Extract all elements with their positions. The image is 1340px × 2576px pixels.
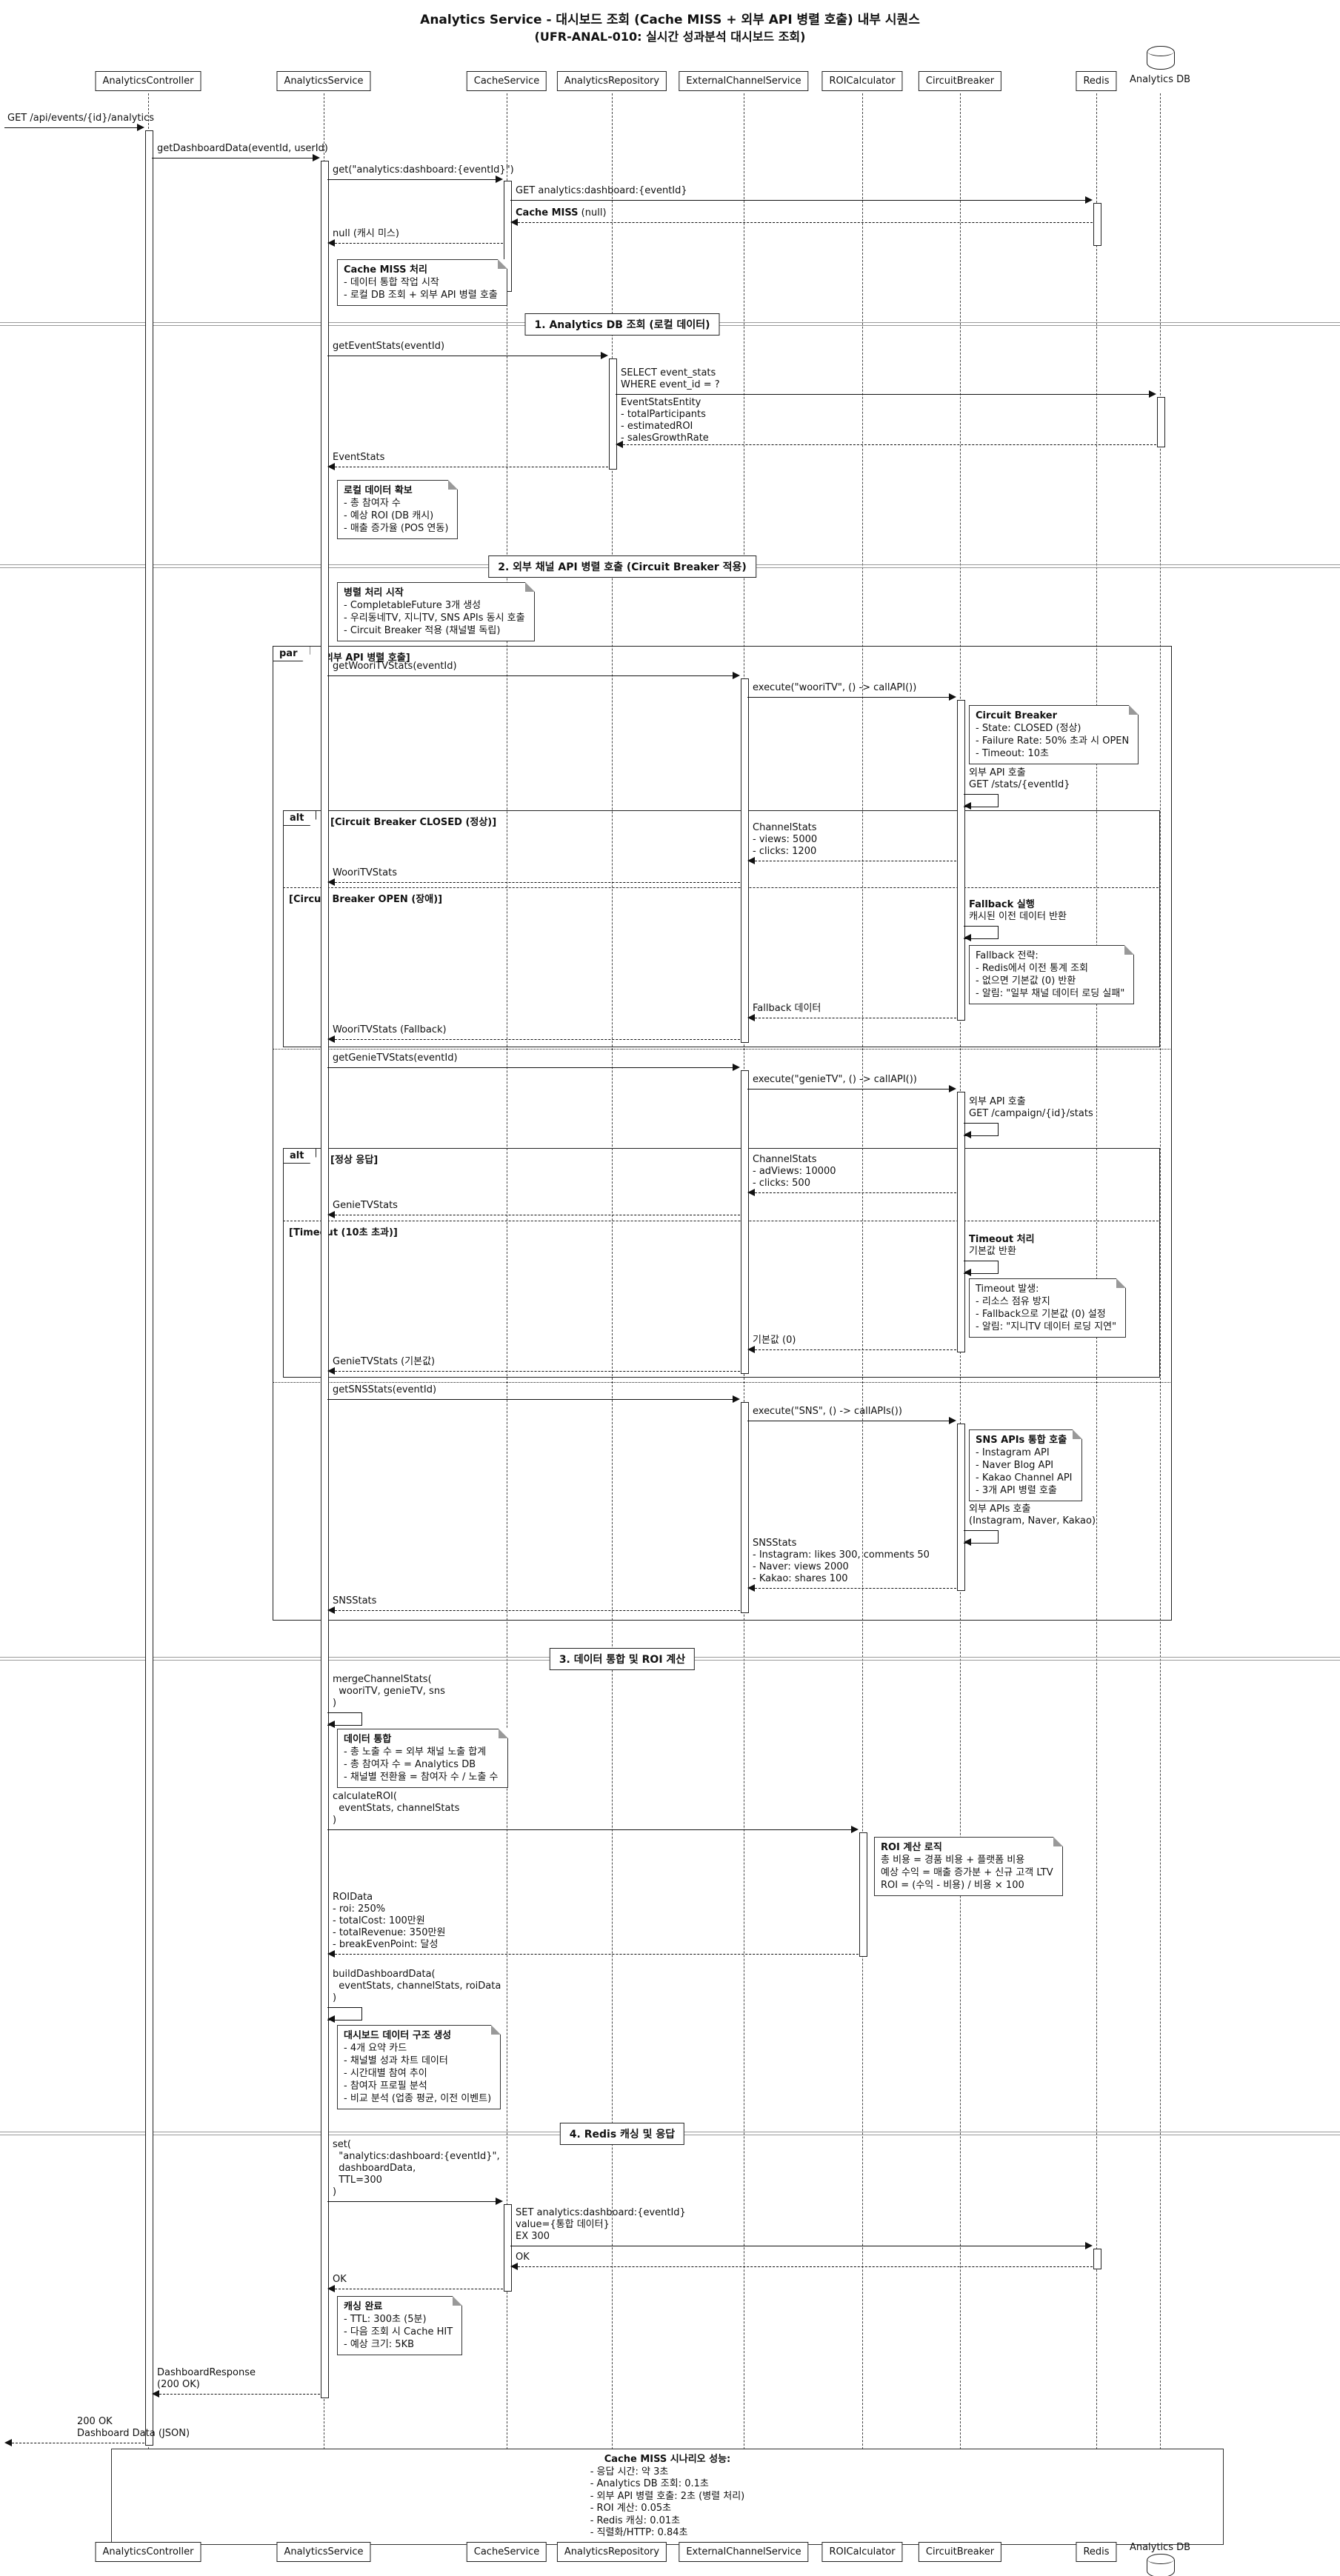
genietv-stats-arrow [335, 1215, 740, 1215]
participant-bottom-service: AnalyticsService [276, 2542, 370, 2562]
divider-label-3: 3. 데이터 통합 및 ROI 계산 [550, 1648, 695, 1670]
participant-top-roicalc: ROICalculator [821, 71, 902, 91]
fallback-exec-label: Fallback 실행캐시된 이전 데이터 반환 [969, 899, 1067, 923]
execute-sns-arrowhead [949, 1417, 956, 1424]
default-zero-label: 기본값 (0) [753, 1335, 796, 1347]
activation-controller [145, 130, 153, 2446]
wooritv-stats-arrowhead [327, 878, 335, 886]
note-sns-apis-title: SNS APIs 통합 호출 [976, 1434, 1073, 1447]
redis-ok-arrow [518, 2266, 1093, 2267]
note-data-merge-title: 데이터 통합 [344, 1733, 499, 1746]
participant-top-breaker: CircuitBreaker [919, 71, 1001, 91]
ext-api-call-wooritv-arrowhead [964, 802, 971, 810]
redis-get-arrow [510, 200, 1085, 201]
frame-tag-par: par [273, 646, 310, 661]
note-roi-logic: ROI 계산 로직총 비용 = 경품 비용 + 플랫폼 비용예상 수익 = 매출… [874, 1837, 1063, 1896]
build-dashboard-data-arrowhead [327, 2015, 335, 2023]
http-get-analytics-arrowhead [137, 124, 144, 131]
note-fold-corner [1124, 945, 1134, 955]
get-genietv-stats-label: getGenieTVStats(eventId) [333, 1052, 458, 1064]
note-local-data: 로컬 데이터 확보- 총 참여자 수- 예상 ROI (DB 캐시)- 매출 증… [337, 480, 458, 539]
frame-guard: [Timeout (10초 초과)] [289, 1224, 398, 1238]
participant-top-repo: AnalyticsRepository [557, 71, 667, 91]
participant-bottom-external: ExternalChannelService [679, 2542, 808, 2562]
cache-set-label: set( "analytics:dashboard:{eventId}", da… [333, 2139, 500, 2198]
activation-redis [1093, 203, 1101, 246]
wooritv-stats-label: WooriTVStats [333, 867, 397, 879]
activation-repo [609, 358, 617, 470]
participant-top-redis: Redis [1076, 71, 1116, 91]
activation-roicalc [859, 1832, 867, 1957]
get-genietv-stats-arrowhead [733, 1064, 740, 1071]
execute-genietv-arrowhead [949, 1085, 956, 1092]
fallback-exec-arrowhead [964, 934, 971, 941]
channelstats-wooritv-label: ChannelStats- views: 5000- clicks: 1200 [753, 822, 817, 858]
divider-label-1: 1. Analytics DB 조회 (로컬 데이터) [525, 313, 720, 336]
execute-wooritv-arrowhead [949, 693, 956, 701]
note-circuit-breaker: Circuit Breaker- State: CLOSED (정상)- Fai… [969, 705, 1139, 764]
wooritv-stats-fallback-arrowhead [327, 1035, 335, 1043]
wooritv-stats-fallback-label: WooriTVStats (Fallback) [333, 1024, 447, 1036]
cache-set-arrowhead [496, 2198, 503, 2205]
redis-ok-arrowhead [510, 2263, 518, 2270]
fallback-data-arrowhead [747, 1014, 755, 1021]
event-stats-arrowhead [327, 463, 335, 470]
build-dashboard-data-label: buildDashboardData( eventStats, channelS… [333, 1969, 501, 2004]
ext-api-call-genietv-label: 외부 API 호출GET /campaign/{id}/stats [969, 1096, 1093, 1120]
participant-bottom-repo: AnalyticsRepository [557, 2542, 667, 2562]
get-wooritv-stats-label: getWooriTVStats(eventId) [333, 661, 457, 673]
note-timeout: Timeout 발생:- 리소스 점유 방지- Fallback으로 기본값 (… [969, 1278, 1126, 1338]
cache-miss-null-arrowhead [510, 218, 518, 226]
get-event-stats-arrowhead [601, 352, 608, 359]
participant-bottom-redis: Redis [1076, 2542, 1116, 2562]
roi-data-label: ROIData- roi: 250%- totalCost: 100만원- to… [333, 1892, 445, 1951]
participant-bottom-roicalc: ROICalculator [821, 2542, 902, 2562]
event-stats-arrow [335, 467, 608, 467]
diagram-title-line1: Analytics Service - 대시보드 조회 (Cache MISS … [0, 9, 1340, 27]
par-section-separator [273, 1049, 1170, 1050]
note-fold-corner [491, 2025, 501, 2035]
activation-external [741, 1070, 749, 1374]
sns-stats-arrowhead [327, 1606, 335, 1614]
http-200-ok-label: 200 OKDashboard Data (JSON) [77, 2416, 190, 2440]
note-fallback-strategy: Fallback 전략:- Redis에서 이전 통계 조회- 없으면 기본값 … [969, 945, 1134, 1004]
note-sns-apis: SNS APIs 통합 호출- Instagram API- Naver Blo… [969, 1429, 1082, 1501]
note-performance-summary: Cache MISS 시나리오 성능:- 응답 시간: 약 3초 - Analy… [111, 2449, 1224, 2545]
note-parallel-start: 병렬 처리 시작- CompletableFuture 3개 생성- 우리동네T… [337, 582, 535, 641]
http-get-analytics-arrow [4, 127, 137, 128]
database-icon-bottom [1147, 2554, 1175, 2576]
note-timeout-title: Timeout 발생: [976, 1283, 1116, 1295]
channelstats-genietv-arrowhead [747, 1189, 755, 1196]
note-fold-corner [499, 1729, 508, 1738]
note-cache-miss-handling: Cache MISS 처리- 데이터 통합 작업 시작- 로컬 DB 조회 + … [337, 259, 507, 306]
redis-ok-label: OK [516, 2252, 530, 2263]
frame-alt-2 [283, 1148, 1160, 1378]
redis-get-label: GET analytics:dashboard:{eventId} [516, 185, 687, 197]
calculate-roi-arrowhead [851, 1826, 859, 1833]
frame-guard: [Circuit Breaker CLOSED (정상)] [330, 814, 496, 828]
snsstats-detail-arrow [755, 1588, 956, 1589]
cache-get-arrow [327, 179, 496, 180]
note-fold-corner [1129, 705, 1139, 715]
select-event-stats-label: SELECT event_statsWHERE event_id = ? [621, 367, 720, 391]
snsstats-detail-arrowhead [747, 1584, 755, 1592]
wooritv-stats-arrow [335, 882, 740, 883]
http-200-ok-arrow [12, 2443, 144, 2443]
participant-top-external: ExternalChannelService [679, 71, 808, 91]
http-get-analytics-label: GET /api/events/{id}/analytics [7, 113, 154, 124]
note-local-data-title: 로컬 데이터 확보 [344, 484, 448, 497]
wooritv-stats-fallback-arrow [335, 1039, 740, 1040]
participant-top-db: Analytics DB [1130, 74, 1190, 85]
frame-alt-1 [283, 810, 1160, 1047]
get-wooritv-stats-arrow [327, 675, 733, 676]
participant-bottom-cache: CacheService [467, 2542, 547, 2562]
null-cache-miss-arrow [335, 243, 503, 244]
dashboard-response-arrow [159, 2394, 320, 2395]
channelstats-genietv-label: ChannelStats- adViews: 10000- clicks: 50… [753, 1154, 836, 1189]
database-icon-ellipse [1147, 47, 1174, 56]
note-fold-corner [525, 582, 535, 592]
get-dashboard-data-arrowhead [313, 154, 320, 161]
default-zero-arrow [755, 1349, 956, 1350]
get-event-stats-arrow [327, 356, 601, 356]
cache-set-arrow [327, 2201, 496, 2202]
participant-bottom-db: Analytics DB [1130, 2542, 1190, 2553]
ext-api-call-genietv-arrowhead [964, 1131, 971, 1138]
participant-top-service: AnalyticsService [276, 71, 370, 91]
frame-guard: [정상 응답] [330, 1152, 378, 1166]
note-roi-logic-title: ROI 계산 로직 [881, 1841, 1053, 1854]
timeout-handling-arrowhead [964, 1269, 971, 1276]
calculate-roi-arrow [327, 1829, 851, 1830]
select-event-stats-arrow [616, 394, 1149, 395]
note-performance-summary-title: Cache MISS 시나리오 성능: [119, 2454, 1216, 2466]
note-caching-done-title: 캐싱 완료 [344, 2300, 453, 2313]
execute-wooritv-arrow [747, 697, 949, 698]
participant-top-controller: AnalyticsController [96, 71, 201, 91]
calculate-roi-label: calculateROI( eventStats, channelStats) [333, 1791, 459, 1826]
get-dashboard-data-label: getDashboardData(eventId, userId) [157, 143, 328, 155]
note-fold-corner [1053, 1837, 1063, 1846]
frame-else-line [283, 887, 1159, 888]
cache-get-label: get("analytics:dashboard:{eventId}") [333, 164, 514, 176]
execute-wooritv-label: execute("wooriTV", () -> callAPI()) [753, 682, 916, 694]
fallback-data-arrow [755, 1018, 956, 1018]
channelstats-wooritv-arrow [755, 861, 956, 861]
frame-tag-alt: alt [283, 1148, 316, 1164]
http-200-ok-arrowhead [4, 2439, 12, 2446]
null-cache-miss-label: null (캐시 미스) [333, 228, 399, 240]
note-performance-summary-lines: - 응답 시간: 약 3초 - Analytics DB 조회: 0.1초 - … [590, 2466, 745, 2540]
divider-label-4: 4. Redis 캐싱 및 응답 [560, 2123, 684, 2145]
get-dashboard-data-arrow [152, 158, 313, 159]
ext-apis-call-sns-label: 외부 APIs 호출(Instagram, Naver, Kakao) [969, 1504, 1096, 1527]
merge-channel-stats-arrowhead [327, 1721, 335, 1728]
note-dashboard-structure: 대시보드 데이터 구조 생성- 4개 요약 카드- 채널별 성과 차트 데이터-… [337, 2025, 501, 2109]
activation-breaker [957, 700, 965, 1021]
execute-sns-label: execute("SNS", () -> callAPIs()) [753, 1406, 902, 1418]
cache-ok-arrowhead [327, 2285, 335, 2292]
default-zero-arrowhead [747, 1346, 755, 1353]
channelstats-genietv-arrow [755, 1192, 956, 1193]
dashboard-response-label: DashboardResponse(200 OK) [157, 2367, 256, 2391]
genietv-stats-label: GenieTVStats [333, 1200, 398, 1212]
diagram-title-line2: (UFR-ANAL-010: 실시간 성과분석 대시보드 조회) [0, 27, 1340, 44]
genietv-stats-arrowhead [327, 1211, 335, 1218]
execute-genietv-label: execute("genieTV", () -> callAPI()) [753, 1074, 917, 1086]
ext-apis-call-sns-arrowhead [964, 1538, 971, 1546]
event-stats-label: EventStats [333, 452, 384, 464]
ext-api-call-wooritv-label: 외부 API 호출GET /stats/{eventId} [969, 767, 1070, 791]
snsstats-detail-label: SNSStats- Instagram: likes 300, comments… [753, 1538, 930, 1585]
get-genietv-stats-arrow [327, 1067, 733, 1068]
cache-get-arrowhead [496, 176, 503, 183]
merge-channel-stats-label: mergeChannelStats( wooriTV, genieTV, sns… [333, 1674, 445, 1709]
participant-bottom-breaker: CircuitBreaker [919, 2542, 1001, 2562]
genietv-stats-default-label: GenieTVStats (기본값) [333, 1356, 435, 1368]
note-caching-done: 캐싱 완료- TTL: 300초 (5분)- 다음 조회 시 Cache HIT… [337, 2296, 462, 2355]
redis-set-arrowhead [1085, 2242, 1093, 2249]
cache-miss-null-label: Cache MISS (null) [516, 207, 607, 219]
frame-guard: [Circuit Breaker OPEN (장애)] [289, 891, 442, 905]
channelstats-wooritv-arrowhead [747, 857, 755, 864]
activation-redis [1093, 2249, 1101, 2269]
redis-set-arrow [510, 2246, 1085, 2246]
sequence-diagram: Analytics Service - 대시보드 조회 (Cache MISS … [0, 0, 1340, 2576]
roi-data-arrowhead [327, 1950, 335, 1958]
execute-sns-arrow [747, 1421, 949, 1421]
note-circuit-breaker-title: Circuit Breaker [976, 710, 1129, 722]
get-event-stats-label: getEventStats(eventId) [333, 341, 444, 353]
execute-genietv-arrow [747, 1089, 949, 1090]
event-stats-entity-label: EventStatsEntity- totalParticipants- est… [621, 397, 709, 444]
participant-top-cache: CacheService [467, 71, 547, 91]
get-sns-stats-arrowhead [733, 1395, 740, 1403]
cache-ok-arrow [335, 2289, 503, 2289]
par-section-separator [273, 1382, 1170, 1383]
genietv-stats-default-arrow [335, 1371, 740, 1372]
note-fold-corner [1116, 1278, 1126, 1288]
note-fold-corner [498, 259, 507, 269]
note-fold-corner [1073, 1429, 1082, 1439]
cache-ok-label: OK [333, 2274, 347, 2286]
fallback-data-label: Fallback 데이터 [753, 1003, 821, 1015]
frame-else-line [283, 1221, 1159, 1221]
sns-stats-arrow [335, 1610, 740, 1611]
note-parallel-start-title: 병렬 처리 시작 [344, 587, 525, 599]
note-fold-corner [453, 2296, 462, 2306]
event-stats-entity-arrow [623, 444, 1156, 445]
frame-tag-alt: alt [283, 810, 316, 826]
cache-miss-null-arrow [518, 222, 1093, 223]
dashboard-response-arrowhead [152, 2390, 159, 2398]
activation-cache [504, 2204, 512, 2292]
note-fold-corner [448, 480, 458, 490]
database-icon-ellipse [1147, 2555, 1174, 2564]
participant-bottom-controller: AnalyticsController [96, 2542, 201, 2562]
activation-service [321, 161, 329, 2398]
note-cache-miss-handling-title: Cache MISS 처리 [344, 264, 498, 276]
divider-label-2: 2. 외부 채널 API 병렬 호출 (Circuit Breaker 적용) [488, 555, 756, 578]
roi-data-arrow [335, 1954, 859, 1955]
database-icon-top [1147, 46, 1175, 70]
timeout-handling-label: Timeout 처리기본값 반환 [969, 1234, 1035, 1258]
get-sns-stats-label: getSNSStats(eventId) [333, 1384, 436, 1396]
note-dashboard-structure-title: 대시보드 데이터 구조 생성 [344, 2029, 491, 2042]
select-event-stats-arrowhead [1149, 390, 1156, 398]
redis-set-label: SET analytics:dashboard:{eventId}value={… [516, 2207, 686, 2243]
sns-stats-label: SNSStats [333, 1595, 376, 1607]
get-sns-stats-arrow [327, 1399, 733, 1400]
activation-db [1157, 397, 1165, 447]
activation-external [741, 1402, 749, 1613]
genietv-stats-default-arrowhead [327, 1367, 335, 1375]
activation-breaker [957, 1424, 965, 1591]
note-fallback-strategy-title: Fallback 전략: [976, 950, 1124, 962]
note-data-merge: 데이터 통합- 총 노출 수 = 외부 채널 노출 합계- 총 참여자 수 = … [337, 1729, 508, 1788]
get-wooritv-stats-arrowhead [733, 672, 740, 679]
null-cache-miss-arrowhead [327, 239, 335, 247]
redis-get-arrowhead [1085, 196, 1093, 204]
